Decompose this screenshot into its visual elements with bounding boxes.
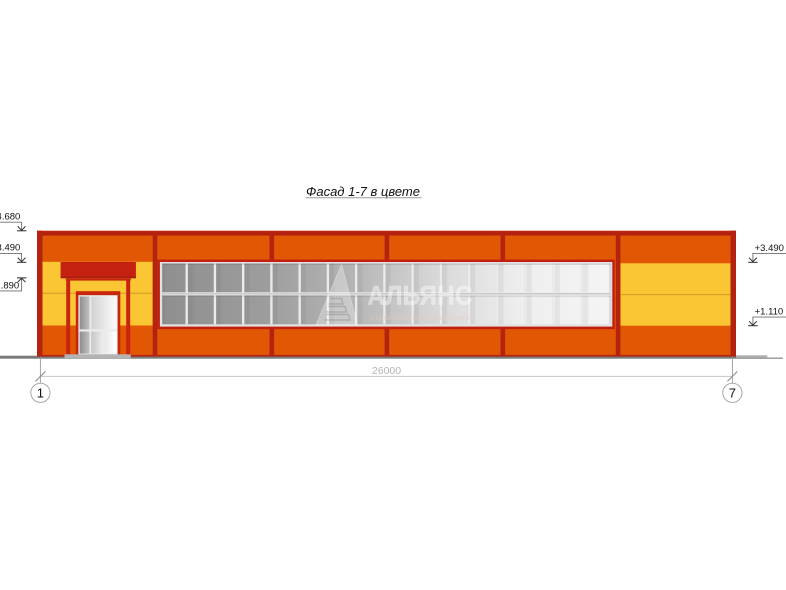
svg-text:+4.680: +4.680 [0, 212, 20, 223]
svg-text:26000: 26000 [372, 365, 401, 377]
svg-text:Фасад 1-7 в цвете: Фасад 1-7 в цвете [306, 184, 420, 199]
svg-text:+3.490: +3.490 [755, 243, 784, 254]
svg-text:+2.890: +2.890 [0, 281, 19, 292]
svg-text:строительная компания: строительная компания [370, 313, 470, 322]
svg-text:+1.110: +1.110 [755, 307, 784, 318]
svg-text:АЛЬЯНС: АЛЬЯНС [368, 281, 473, 311]
svg-text:+3.490: +3.490 [0, 243, 20, 254]
svg-text:7: 7 [729, 385, 736, 400]
svg-text:1: 1 [37, 385, 44, 400]
